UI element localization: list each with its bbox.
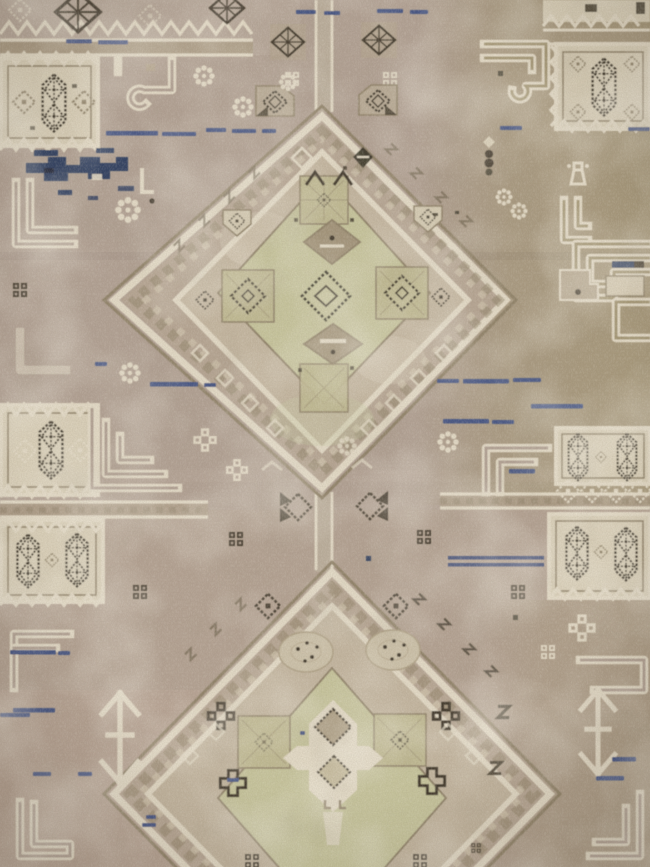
- texture-overlays: [0, 0, 650, 867]
- rug-photo: Antique handwoven tribal rug — detail wi…: [0, 0, 650, 867]
- rug-image: Antique handwoven tribal rug — detail wi…: [0, 0, 650, 867]
